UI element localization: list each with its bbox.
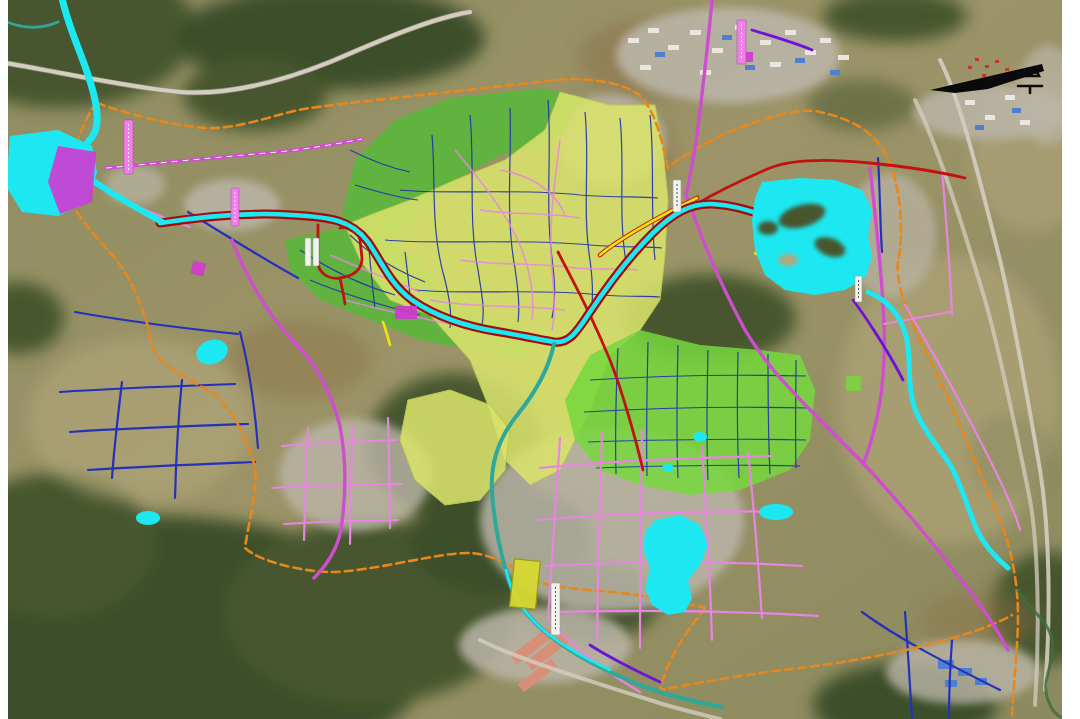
road-label-white-4 — [855, 276, 862, 302]
right-margin — [1062, 0, 1080, 719]
yellow-site-block — [510, 559, 541, 609]
road-label-white-3 — [673, 180, 681, 212]
magenta-patch-2 — [395, 306, 417, 319]
map-canvas: 北 — [0, 0, 1080, 719]
satellite-planning-map: 北 — [0, 0, 1080, 719]
zone-green-small — [846, 376, 861, 391]
road-label-pink-3 — [737, 20, 746, 64]
road-label-pink-1 — [124, 120, 133, 174]
left-margin — [0, 0, 8, 719]
magenta-patch-1 — [191, 261, 206, 276]
road-label-pink-2 — [231, 188, 239, 226]
big-lake — [752, 178, 872, 295]
road-label-white-2 — [551, 583, 560, 635]
zone-green-east — [565, 330, 815, 495]
